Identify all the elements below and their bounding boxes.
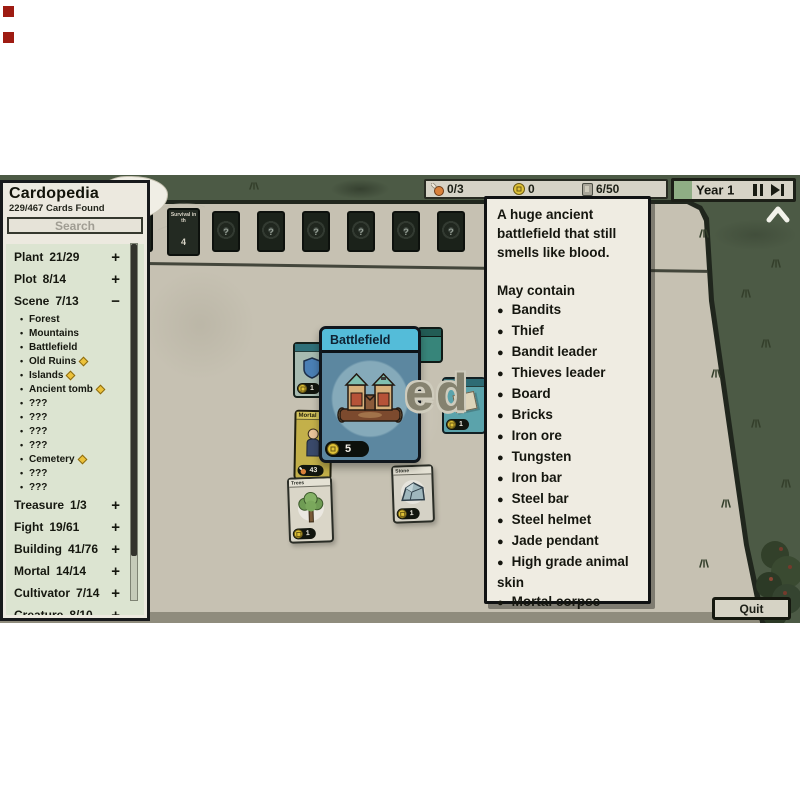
pause-button[interactable]	[753, 184, 765, 196]
card-value-pill: 1	[297, 383, 320, 394]
quit-button[interactable]: Quit	[712, 597, 791, 620]
category-label: Mortal	[14, 564, 50, 578]
tooltip-item-label: Thief	[512, 323, 544, 338]
bullet-icon: ●	[497, 452, 504, 464]
stone-value: 1	[410, 510, 414, 517]
sidebar-category-cultivator[interactable]: Cultivator7/14+	[6, 582, 144, 604]
category-toggle-button[interactable]: +	[111, 608, 120, 616]
bullet-icon: •	[20, 398, 29, 408]
rare-diamond-icon	[95, 384, 105, 394]
floating-saved-text: ed	[405, 363, 470, 423]
tooltip-item-label: Bandit leader	[512, 344, 598, 359]
bullet-icon: ●	[497, 494, 504, 506]
year-panel: Year 1	[671, 178, 796, 202]
search-input[interactable]	[7, 217, 143, 234]
scene-entry-label: ???	[29, 398, 47, 409]
battlefield-card-title: Battlefield	[322, 329, 418, 353]
category-count: 7/13	[55, 294, 78, 308]
scene-entry-label: Mountains	[29, 328, 79, 339]
card-stack-icon	[582, 183, 593, 196]
category-count: 14/14	[56, 564, 86, 578]
category-count: 8/14	[43, 272, 66, 286]
scene-entry[interactable]: •Battlefield	[6, 340, 144, 354]
bullet-icon: ●	[497, 410, 504, 422]
cardopedia-list: Plant21/29+Plot8/14+Scene7/13−•Forest•Mo…	[6, 244, 144, 615]
facedown-card[interactable]: ?	[212, 211, 240, 252]
scene-entry-label: ???	[29, 482, 47, 493]
category-count: 41/76	[68, 542, 98, 556]
scene-entry-label: Forest	[29, 314, 60, 325]
bullet-icon: •	[20, 342, 29, 352]
scene-entry[interactable]: •???	[6, 438, 144, 452]
sidebar-category-mortal[interactable]: Mortal14/14+	[6, 560, 144, 582]
scene-entry[interactable]: •???	[6, 480, 144, 494]
tooltip-item-label: Mortal corpse	[512, 594, 601, 609]
bullet-icon: ●	[497, 557, 504, 569]
survival-deck-card[interactable]: Survival in th 4	[167, 208, 200, 256]
stone-card[interactable]: Stone 1	[391, 464, 435, 523]
tooltip-item: ●Bandit leader	[497, 342, 647, 363]
category-label: Plant	[14, 250, 43, 264]
sidebar-category-plant[interactable]: Plant21/29+	[6, 246, 144, 268]
category-toggle-button[interactable]: +	[111, 586, 120, 601]
facedown-card[interactable]: ?	[302, 211, 330, 252]
food-count: 0/3	[447, 182, 464, 196]
coin-icon	[327, 443, 339, 455]
category-count: 21/29	[49, 250, 79, 264]
scene-entry-label: Ancient tomb	[29, 384, 93, 395]
scene-entry-label: ???	[29, 426, 47, 437]
scene-entry[interactable]: •???	[6, 396, 144, 410]
drumstick-icon	[431, 183, 444, 196]
facedown-card[interactable]: ?	[347, 211, 375, 252]
category-count: 19/61	[49, 520, 79, 534]
question-mark: ?	[313, 227, 319, 237]
category-count: 8/10	[69, 608, 92, 615]
card-value-pill: 1	[293, 528, 316, 540]
bullet-icon: ●	[497, 347, 504, 359]
tooltip-item-label: Iron bar	[512, 470, 562, 485]
screenshot-page: Survival in th 4 ??????? 1 Mortal	[0, 0, 800, 800]
rare-diamond-icon	[77, 454, 87, 464]
card-value: 1	[310, 385, 314, 392]
scene-entry-label: Battlefield	[29, 342, 77, 353]
tooltip-item: ●Bandits	[497, 300, 647, 321]
bullet-icon: •	[20, 384, 29, 394]
tooltip-description-line: smells like blood.	[497, 243, 642, 262]
scene-entry-label: ???	[29, 468, 47, 479]
card-resource: 6/50	[582, 181, 619, 197]
scene-entry-label: Old Ruins	[29, 356, 76, 367]
scene-entry[interactable]: •???	[6, 410, 144, 424]
tooltip-item: ●Thieves leader	[497, 363, 647, 384]
tooltip-item: ●Tungsten	[497, 447, 647, 468]
red-marker	[3, 32, 14, 43]
category-toggle-button[interactable]: +	[111, 542, 120, 557]
cardopedia-title: Cardopedia	[9, 185, 147, 203]
cardopedia-panel: Cardopedia 229/467 Cards Found Plant21/2…	[0, 180, 150, 621]
skip-button[interactable]	[771, 184, 786, 196]
category-label: Cultivator	[14, 586, 70, 600]
tooltip-item: ●Steel helmet	[497, 510, 647, 531]
bullet-icon: •	[20, 370, 29, 380]
battlefield-value: 5	[345, 443, 351, 455]
bullet-icon: ●	[497, 473, 504, 485]
tooltip-item: ●Mortal corpse	[497, 592, 647, 613]
tooltip-item: ●Steel bar	[497, 489, 647, 510]
trees-card-title: Trees	[289, 478, 330, 487]
question-mark: ?	[403, 227, 409, 237]
stone-icon	[397, 478, 428, 505]
facedown-card[interactable]: ?	[437, 211, 465, 252]
bullet-icon: •	[20, 440, 29, 450]
tooltip-item-label: Thieves leader	[512, 365, 606, 380]
question-mark: ?	[358, 227, 364, 237]
category-toggle-button[interactable]: +	[111, 564, 120, 579]
category-count: 7/14	[76, 586, 99, 600]
may-contain-label: May contain	[497, 281, 642, 300]
coin-icon	[398, 509, 407, 518]
bullet-icon: •	[20, 426, 29, 436]
scene-entry[interactable]: •???	[6, 424, 144, 438]
game-viewport: Survival in th 4 ??????? 1 Mortal	[0, 175, 800, 623]
tooltip-item-label: High grade animal skin	[497, 554, 629, 590]
tooltip-item-label: Bandits	[512, 302, 562, 317]
tree-icon	[295, 490, 326, 525]
stone-card-title: Stone	[393, 466, 431, 475]
tooltip-item-label: Bricks	[512, 407, 553, 422]
category-toggle-button[interactable]: +	[111, 520, 120, 535]
mortal-stat-pill: 43	[297, 465, 323, 476]
category-label: Building	[14, 542, 62, 556]
scene-entry-label: Cemetery	[29, 454, 75, 465]
card-tooltip: A huge ancient battlefield that still sm…	[484, 196, 651, 604]
category-toggle-button[interactable]: +	[111, 272, 120, 287]
category-label: Treasure	[14, 498, 64, 512]
sidebar-category-plot[interactable]: Plot8/14+	[6, 268, 144, 290]
scene-entry[interactable]: •Mountains	[6, 326, 144, 340]
bullet-icon: •	[20, 356, 29, 366]
tooltip-description-line: A huge ancient	[497, 205, 642, 224]
drumstick-icon	[298, 466, 306, 474]
scene-entry-label: ???	[29, 440, 47, 451]
year-label: Year 1	[696, 183, 734, 198]
tooltip-item: ●Thief	[497, 321, 647, 342]
coin-icon	[513, 183, 525, 195]
tooltip-item: ●Iron ore	[497, 426, 647, 447]
tooltip-item: ●Bricks	[497, 405, 647, 426]
hidden-card-title	[419, 329, 441, 337]
red-marker	[3, 6, 14, 17]
scene-entry[interactable]: •Old Ruins	[6, 354, 144, 368]
bullet-icon: ●	[497, 597, 504, 609]
sidebar-category-building[interactable]: Building41/76+	[6, 538, 144, 560]
year-progress-fill	[674, 181, 692, 199]
scene-entry[interactable]: •Forest	[6, 312, 144, 326]
bullet-icon: ●	[497, 515, 504, 527]
question-mark: ?	[268, 227, 274, 237]
tooltip-item: ●Jade pendant	[497, 531, 647, 552]
coin-icon	[298, 384, 307, 393]
battlefield-value-pill: 5	[325, 441, 369, 457]
scene-entry-label: ???	[29, 412, 47, 423]
category-toggle-button[interactable]: +	[111, 498, 120, 513]
coin-icon	[294, 529, 303, 538]
cards-found-count: 229/467 Cards Found	[9, 203, 147, 214]
category-label: Creature	[14, 608, 63, 615]
card-value-pill: 1	[396, 508, 419, 520]
tooltip-item: ●High grade animal skin	[497, 552, 647, 592]
food-resource: 0/3	[431, 181, 464, 197]
bullet-icon: ●	[497, 389, 504, 401]
bullet-icon: ●	[497, 536, 504, 548]
trees-value: 1	[306, 530, 310, 537]
chevron-up-icon[interactable]	[765, 203, 791, 225]
bullet-icon: •	[20, 314, 29, 324]
shield-icon	[303, 357, 321, 379]
sidebar-category-creature[interactable]: Creature8/10+	[6, 604, 144, 615]
tooltip-description: A huge ancient battlefield that still sm…	[497, 205, 642, 262]
sidebar-category-treasure[interactable]: Treasure1/3+	[6, 494, 144, 516]
coin-count: 0	[528, 182, 535, 196]
category-toggle-button[interactable]: +	[111, 250, 120, 265]
bullet-icon: •	[20, 482, 29, 492]
tooltip-item-label: Steel bar	[512, 491, 569, 506]
scrollbar-thumb[interactable]	[131, 244, 137, 556]
rare-diamond-icon	[66, 370, 76, 380]
scene-entry[interactable]: •Cemetery	[6, 452, 144, 466]
tooltip-item-label: Steel helmet	[512, 512, 592, 527]
scene-entry[interactable]: •Islands	[6, 368, 144, 382]
bullet-icon: •	[20, 328, 29, 338]
category-label: Scene	[14, 294, 49, 308]
bullet-icon: •	[20, 412, 29, 422]
category-label: Plot	[14, 272, 37, 286]
scene-entry[interactable]: •???	[6, 466, 144, 480]
deck-card-title: Survival in th	[169, 212, 198, 224]
sidebar-category-scene[interactable]: Scene7/13−	[6, 290, 144, 312]
bullet-icon: ●	[497, 368, 504, 380]
rare-diamond-icon	[79, 356, 89, 366]
fort-illustration	[334, 369, 406, 425]
trees-card[interactable]: Trees 1	[287, 476, 334, 544]
coin-resource: 0	[513, 181, 535, 197]
category-toggle-button[interactable]: −	[111, 294, 120, 309]
tooltip-item-label: Iron ore	[512, 428, 562, 443]
tooltip-item: ●Board	[497, 384, 647, 405]
tooltip-item-label: Board	[512, 386, 551, 401]
scene-entry[interactable]: •Ancient tomb	[6, 382, 144, 396]
scrollbar-track[interactable]	[130, 243, 138, 601]
bullet-icon: •	[20, 454, 29, 464]
question-mark: ?	[223, 227, 229, 237]
tooltip-description-line: battlefield that still	[497, 224, 642, 243]
category-count: 1/3	[70, 498, 87, 512]
mortal-stat-value: 43	[309, 467, 317, 474]
tooltip-item-list: ●Bandits●Thief●Bandit leader●Thieves lea…	[497, 300, 642, 613]
sidebar-category-fight[interactable]: Fight19/61+	[6, 516, 144, 538]
deck-card-count: 4	[169, 237, 198, 247]
scene-entry-label: Islands	[29, 370, 63, 381]
tooltip-item: ●Iron bar	[497, 468, 647, 489]
bullet-icon: ●	[497, 305, 504, 317]
bullet-icon: •	[20, 468, 29, 478]
question-mark: ?	[448, 227, 454, 237]
facedown-card[interactable]: ?	[392, 211, 420, 252]
tooltip-item-label: Tungsten	[512, 449, 572, 464]
category-label: Fight	[14, 520, 43, 534]
bullet-icon: ●	[497, 326, 504, 338]
card-count: 6/50	[596, 182, 619, 196]
tooltip-item-label: Jade pendant	[512, 533, 599, 548]
bullet-icon: ●	[497, 431, 504, 443]
facedown-card[interactable]: ?	[257, 211, 285, 252]
